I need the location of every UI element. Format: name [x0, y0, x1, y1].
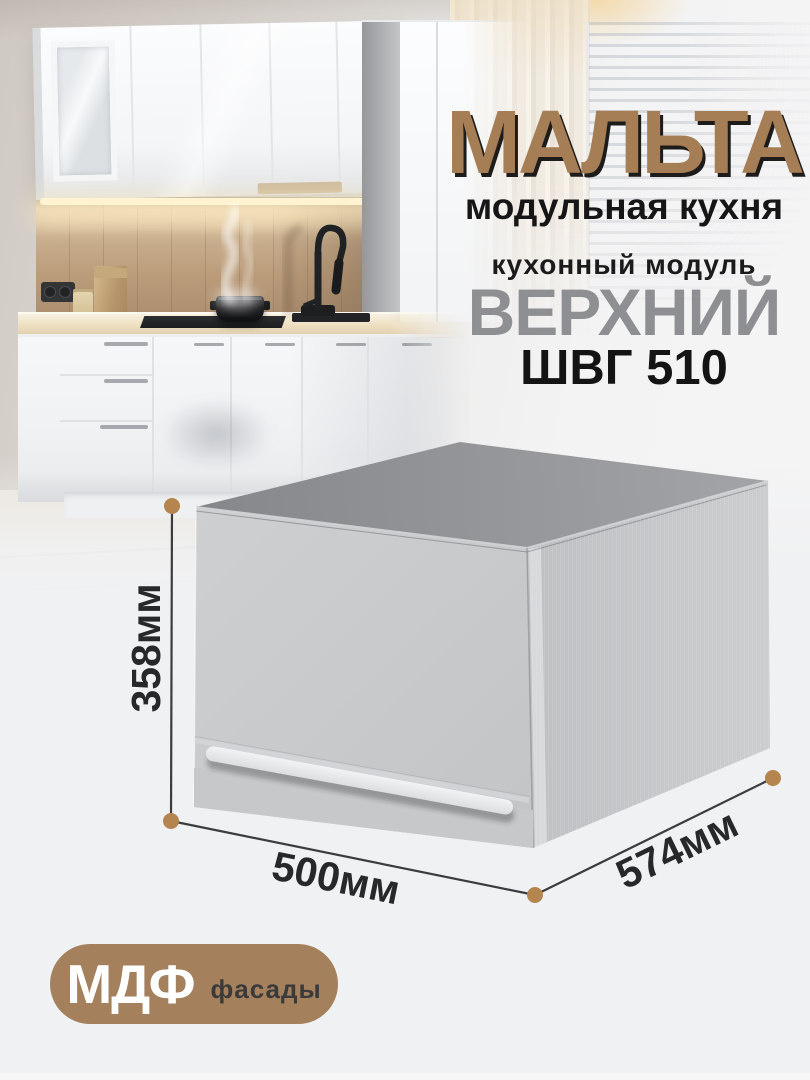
dimension-dot [765, 770, 781, 786]
brand-title: МАЛЬТА [444, 98, 804, 188]
product-model: ШВГ 510 [444, 340, 804, 396]
product-card: МАЛЬТА модульная кухня кухонный модуль В… [0, 0, 810, 1080]
cabinet-box [194, 442, 770, 848]
mdf-badge: МДФ фасады [50, 944, 338, 1024]
dimension-dot [164, 498, 180, 514]
width-dimension-label: 500мм [268, 843, 404, 914]
product-name: ВЕРХНИЙ [444, 274, 804, 350]
dimension-dot [163, 813, 179, 829]
badge-title: МДФ [66, 957, 194, 1012]
page-bottom-strip [0, 1073, 810, 1080]
dimension-dot [527, 887, 543, 903]
badge-label: фасады [211, 974, 322, 1005]
depth-dimension-label: 574мм [609, 800, 745, 898]
height-dimension-label: 358мм [123, 583, 169, 712]
brand-subtitle: модульная кухня [444, 186, 804, 228]
